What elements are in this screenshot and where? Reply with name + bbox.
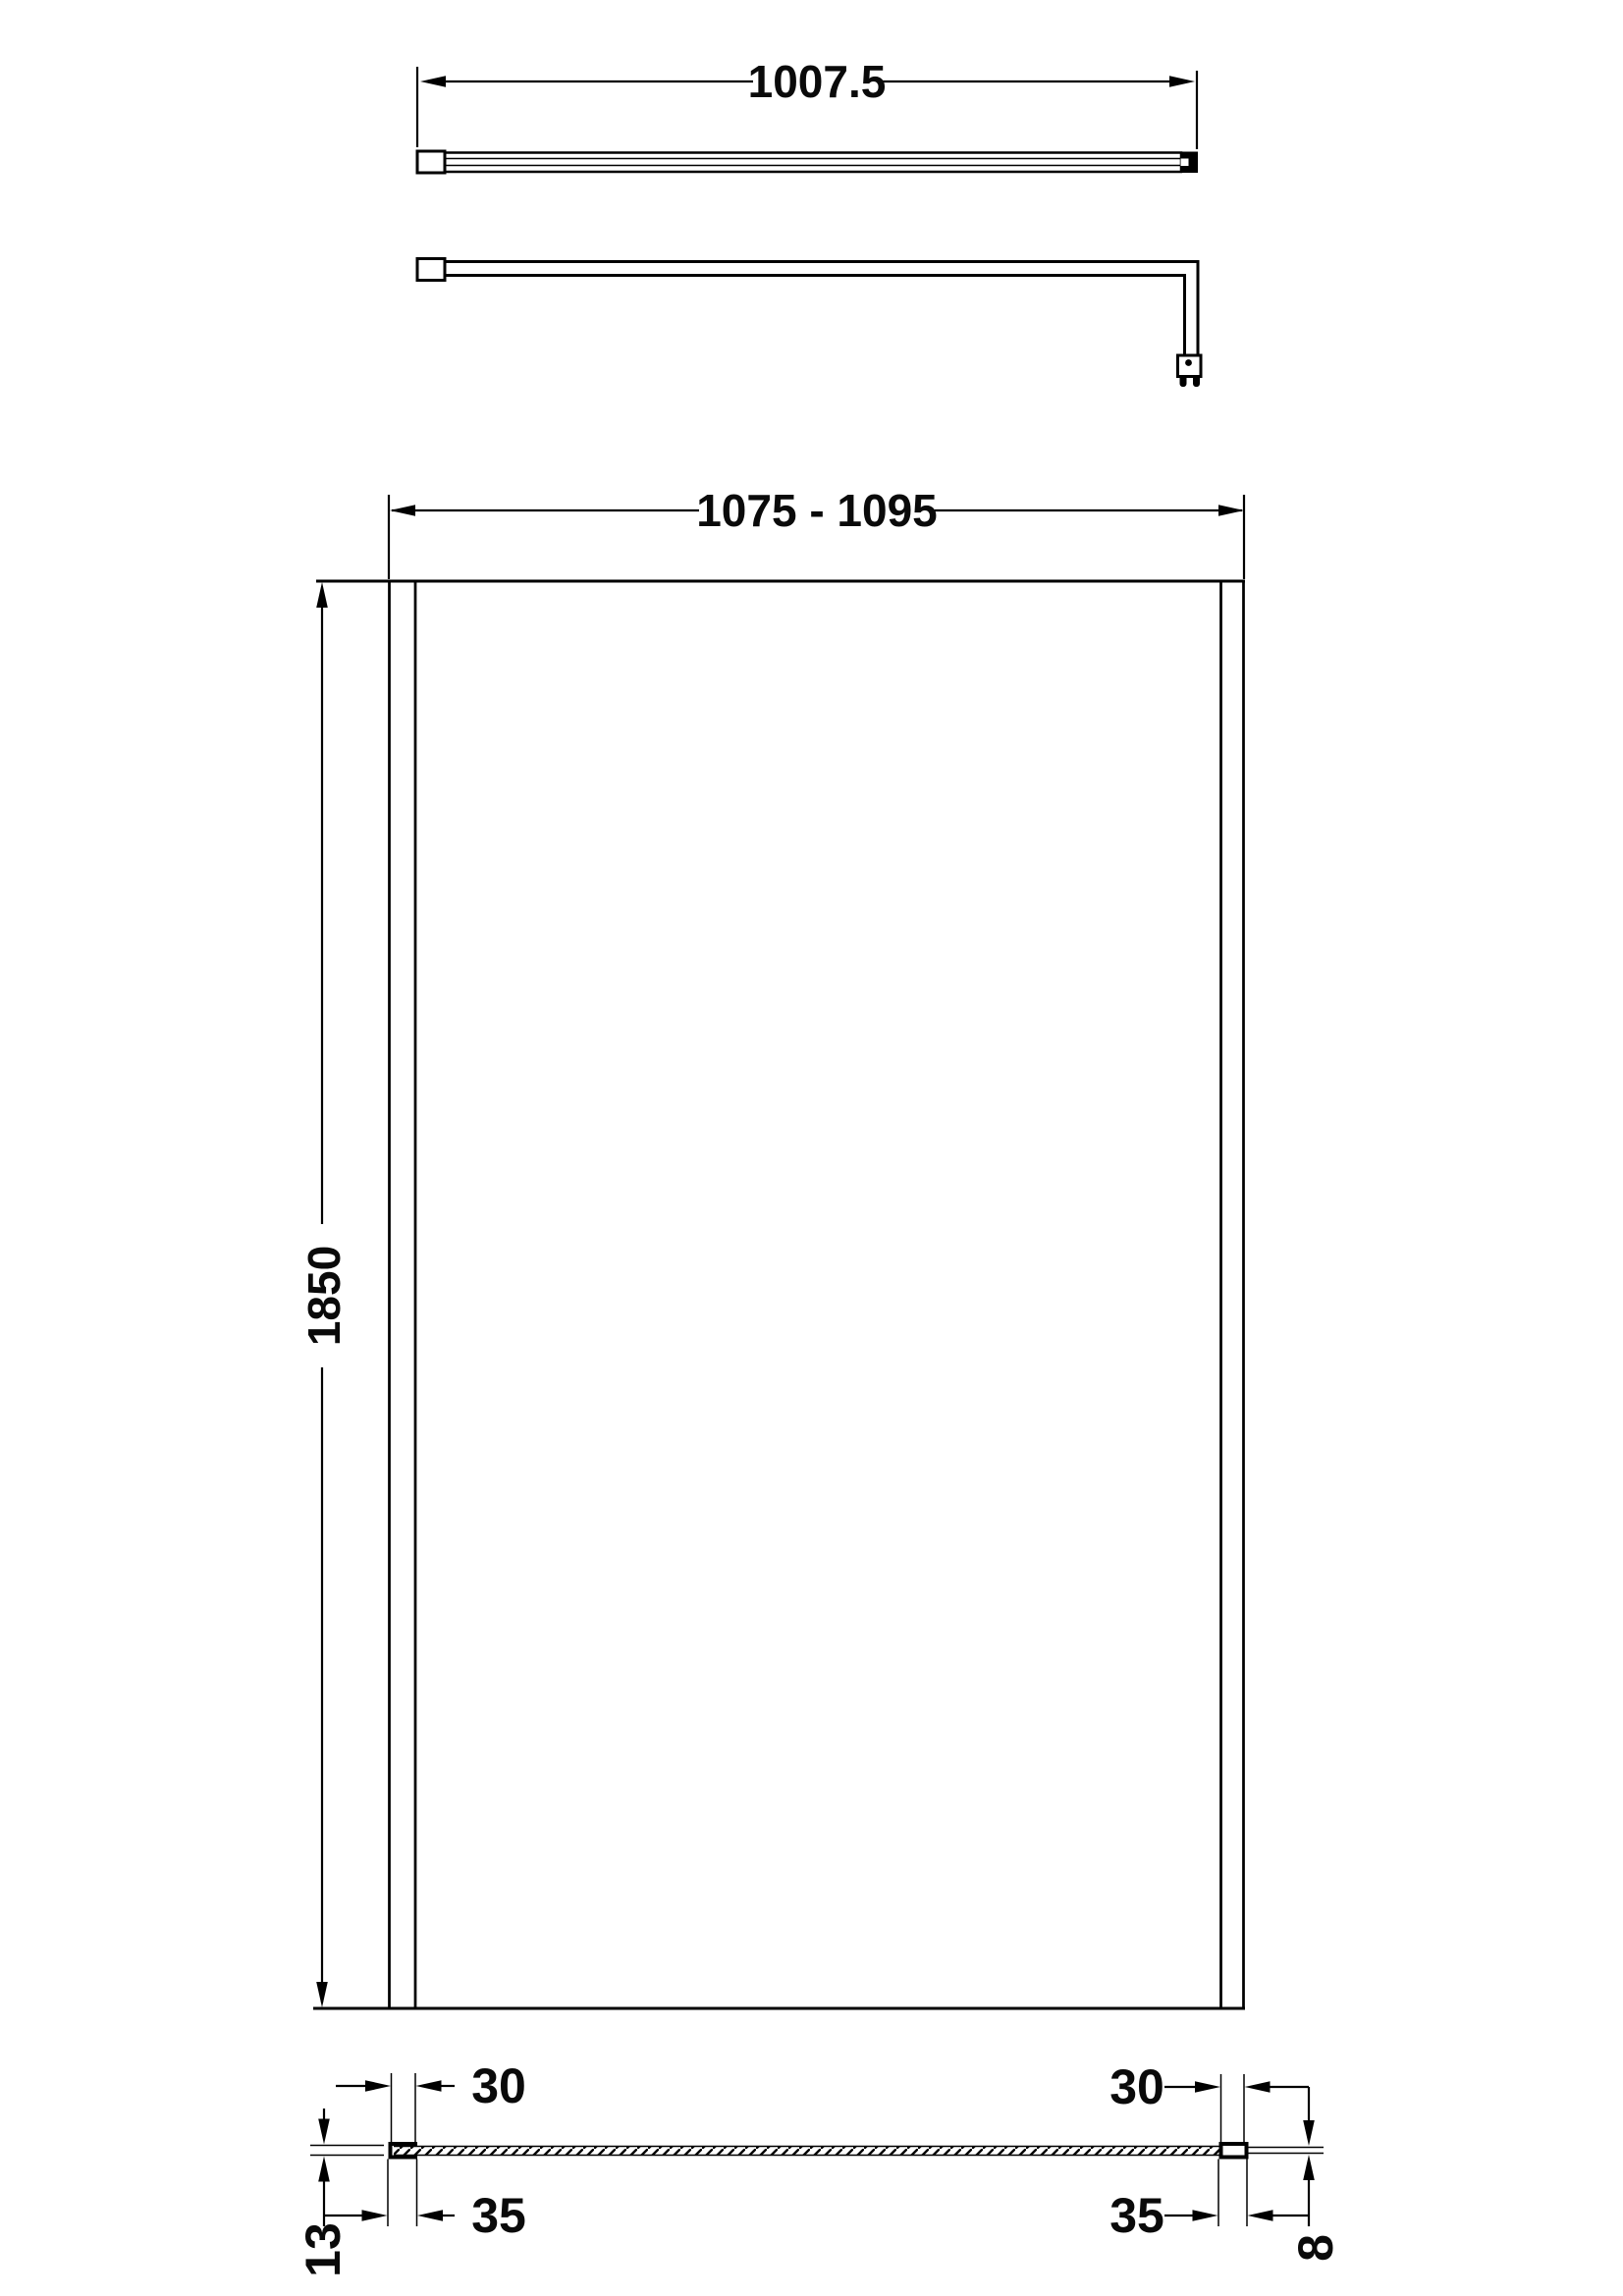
support-bar-top-view: 1007.5 xyxy=(417,56,1198,173)
arrowhead-right xyxy=(1169,76,1195,87)
arrowhead-right xyxy=(1193,2210,1218,2221)
bracket-fork-leg-right xyxy=(1193,377,1200,388)
right-profile-outer-width-label: 35 xyxy=(1109,2188,1164,2243)
arrowhead-down xyxy=(1303,2120,1315,2146)
arrowhead-down xyxy=(318,2119,330,2145)
arrowhead-left xyxy=(420,76,446,87)
glass-panel-front-view: 1075 - 1095 1850 xyxy=(298,485,1245,2008)
arrowhead-right xyxy=(1195,2081,1220,2093)
wall-channel-depth-label: 13 xyxy=(296,2222,351,2277)
shower-screen-drawing: 1007.5 1075 - 1095 xyxy=(0,0,1623,2296)
end-profile-section xyxy=(1221,2144,1247,2158)
bar-wall-flange-side-view xyxy=(417,259,445,281)
left-profile-outer-width-label: 35 xyxy=(471,2188,526,2243)
glass-thickness-label: 8 xyxy=(1288,2234,1343,2262)
arrowhead-left xyxy=(416,2080,442,2092)
arrowhead-down xyxy=(316,1982,328,2007)
arrowhead-up xyxy=(318,2157,330,2182)
arrowhead-right xyxy=(1218,505,1244,516)
arrowhead-left xyxy=(417,2210,443,2221)
arrowhead-right xyxy=(365,2080,391,2092)
bar-tube-top-view xyxy=(445,153,1181,173)
right-profile-width-label: 30 xyxy=(1109,2059,1164,2114)
arrowhead-up xyxy=(1303,2155,1315,2180)
bracket-fork-leg-left xyxy=(1180,377,1187,388)
support-bar-side-view xyxy=(417,259,1201,388)
arrowhead-left xyxy=(390,505,415,516)
glass-section-hatch xyxy=(394,2147,1219,2156)
bottom-section-view: 30 30 35 35 13 xyxy=(296,2058,1343,2277)
bar-tube-inner-outline xyxy=(445,276,1185,356)
arrowhead-up xyxy=(316,582,328,608)
arrowhead-left xyxy=(1245,2081,1271,2093)
arrowhead-left xyxy=(1248,2210,1273,2221)
bar-wall-flange-top-view xyxy=(417,151,445,173)
panel-width-label: 1075 - 1095 xyxy=(696,485,938,536)
left-profile-width-label: 30 xyxy=(471,2058,526,2113)
technical-drawing-canvas: 1007.5 1075 - 1095 xyxy=(0,0,1623,2296)
bar-end-cap-notch xyxy=(1181,159,1189,167)
arrowhead-right xyxy=(362,2210,388,2221)
bracket-screw-hole xyxy=(1185,359,1192,366)
bar-length-label: 1007.5 xyxy=(748,56,887,107)
panel-height-label: 1850 xyxy=(298,1246,350,1346)
